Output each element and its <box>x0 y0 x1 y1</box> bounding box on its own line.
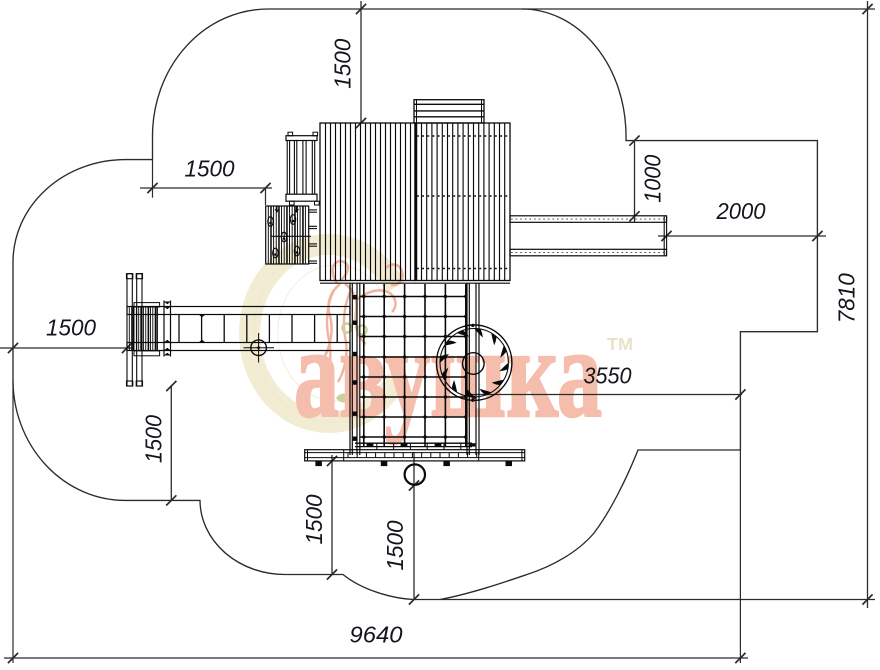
svg-text:1500: 1500 <box>301 495 327 545</box>
svg-text:1500: 1500 <box>185 156 235 182</box>
svg-text:9640: 9640 <box>350 622 403 648</box>
svg-text:авушка: авушка <box>294 302 602 444</box>
svg-text:ТМ: ТМ <box>607 334 633 354</box>
svg-text:1000: 1000 <box>640 155 666 203</box>
svg-text:1500: 1500 <box>141 415 167 463</box>
svg-text:7810: 7810 <box>834 273 860 323</box>
svg-text:2000: 2000 <box>716 198 766 224</box>
svg-text:1500: 1500 <box>46 315 96 341</box>
svg-text:1500: 1500 <box>382 521 408 571</box>
svg-text:1500: 1500 <box>330 39 356 89</box>
svg-text:3550: 3550 <box>584 362 632 388</box>
